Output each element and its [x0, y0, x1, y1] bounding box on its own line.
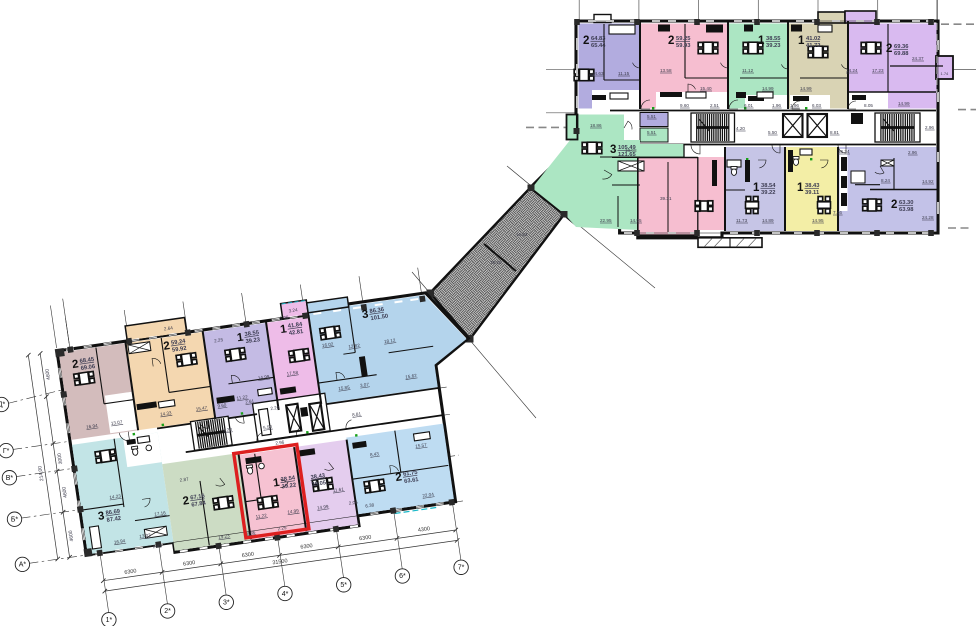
- svg-text:2.96: 2.96: [908, 150, 917, 155]
- svg-text:18.98: 18.98: [625, 148, 637, 153]
- svg-text:39.23: 39.23: [766, 43, 781, 49]
- svg-text:6.01: 6.01: [744, 103, 753, 108]
- svg-text:15.40: 15.40: [700, 86, 712, 91]
- svg-text:3*: 3*: [223, 600, 230, 607]
- svg-text:3: 3: [610, 144, 616, 156]
- svg-text:1.96: 1.96: [772, 103, 781, 108]
- svg-text:4*: 4*: [282, 591, 289, 598]
- svg-text:2*: 2*: [164, 608, 171, 615]
- svg-text:14.99: 14.99: [898, 101, 910, 106]
- svg-text:14.95: 14.95: [812, 218, 824, 223]
- svg-text:В*: В*: [6, 475, 14, 482]
- svg-text:14.24: 14.24: [846, 68, 858, 73]
- svg-text:5.51: 5.51: [647, 114, 656, 119]
- svg-text:1.96: 1.96: [790, 103, 799, 108]
- svg-text:36.34: 36.34: [838, 149, 850, 154]
- svg-text:17.23: 17.23: [872, 68, 884, 73]
- svg-text:65.44: 65.44: [591, 43, 606, 49]
- svg-text:2: 2: [891, 199, 897, 211]
- svg-text:39.11: 39.11: [805, 190, 820, 196]
- svg-text:121.65: 121.65: [618, 152, 637, 158]
- svg-text:9.60: 9.60: [680, 103, 689, 108]
- svg-text:13.58: 13.58: [660, 68, 672, 73]
- svg-text:4.20: 4.20: [736, 126, 745, 131]
- svg-text:1: 1: [798, 35, 805, 47]
- svg-text:39.22: 39.22: [761, 190, 776, 196]
- svg-text:11.73: 11.73: [736, 218, 748, 223]
- svg-text:5.51: 5.51: [647, 130, 656, 135]
- svg-text:1: 1: [753, 182, 760, 194]
- svg-text:2.51: 2.51: [710, 103, 719, 108]
- svg-text:14.92: 14.92: [922, 179, 934, 184]
- svg-text:63.98: 63.98: [899, 207, 914, 213]
- svg-text:2: 2: [668, 35, 674, 47]
- svg-text:16.64: 16.64: [516, 232, 528, 237]
- svg-text:1*: 1*: [106, 617, 113, 624]
- svg-text:14.95: 14.95: [630, 218, 642, 223]
- svg-text:14.63: 14.63: [592, 71, 604, 76]
- svg-text:1: 1: [797, 182, 804, 194]
- svg-text:11.12: 11.12: [742, 68, 754, 73]
- svg-text:7.46: 7.46: [833, 210, 842, 215]
- svg-text:22.95: 22.95: [600, 218, 612, 223]
- svg-text:1: 1: [758, 35, 765, 47]
- svg-text:А*: А*: [19, 562, 27, 569]
- svg-text:14.99: 14.99: [800, 86, 812, 91]
- svg-text:69.88: 69.88: [894, 51, 909, 57]
- svg-text:Д*: Д*: [0, 402, 6, 409]
- svg-text:7*: 7*: [458, 565, 465, 572]
- svg-text:2: 2: [583, 35, 589, 47]
- svg-text:18.86: 18.86: [590, 123, 602, 128]
- svg-text:8.81: 8.81: [830, 130, 839, 135]
- svg-text:5.50: 5.50: [768, 130, 777, 135]
- svg-text:Б*: Б*: [11, 516, 19, 523]
- svg-text:59.93: 59.93: [676, 43, 691, 49]
- svg-text:39.31: 39.31: [660, 196, 672, 201]
- svg-text:11.15: 11.15: [618, 71, 630, 76]
- svg-text:14.89: 14.89: [762, 218, 774, 223]
- svg-text:Г*: Г*: [3, 448, 10, 455]
- svg-text:6.03: 6.03: [812, 103, 821, 108]
- svg-text:5*: 5*: [340, 582, 347, 589]
- svg-text:1.74: 1.74: [941, 71, 950, 76]
- svg-text:24.37: 24.37: [912, 56, 924, 61]
- svg-text:6*: 6*: [399, 573, 406, 580]
- svg-text:79.20: 79.20: [490, 260, 502, 265]
- svg-text:2.96: 2.96: [925, 125, 934, 130]
- svg-text:24.28: 24.28: [922, 215, 934, 220]
- svg-text:8.24: 8.24: [881, 178, 890, 183]
- svg-text:14.99: 14.99: [762, 86, 774, 91]
- svg-text:41.72: 41.72: [806, 43, 821, 49]
- svg-text:2: 2: [886, 43, 892, 55]
- svg-text:8.05: 8.05: [864, 103, 873, 108]
